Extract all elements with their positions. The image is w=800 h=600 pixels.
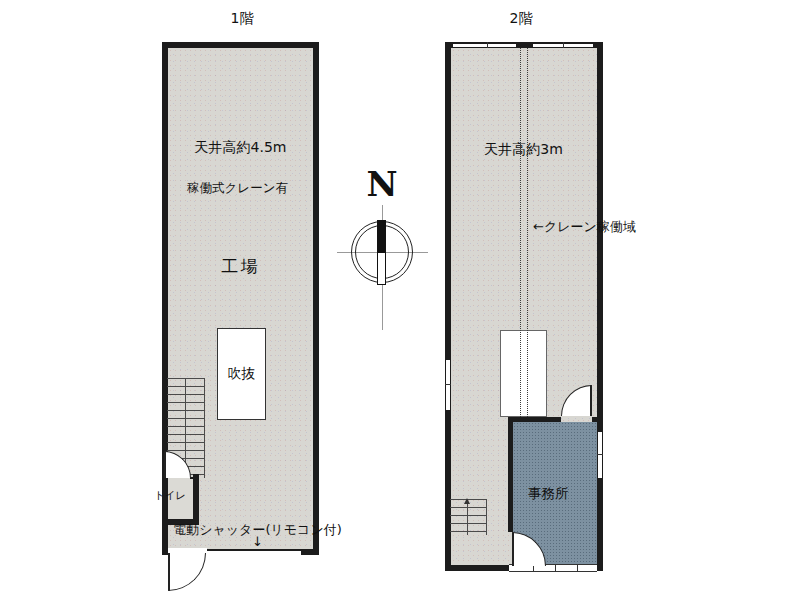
office-top-wall-stub	[592, 417, 600, 422]
toilet-right-wall	[193, 474, 199, 525]
crane-rail-line	[520, 48, 521, 417]
window-mullion	[577, 564, 578, 572]
atrium-void-box: 吹抜	[217, 328, 266, 420]
office-top-wall	[508, 417, 561, 422]
atrium-void-opening-2f	[500, 330, 547, 417]
crane-operating-area-note: ←クレーン稼働域	[533, 218, 636, 236]
left-wall-window	[446, 360, 450, 410]
ceiling-height-note-2f: 天井高約3m	[451, 141, 596, 159]
window-mullion	[563, 42, 564, 48]
entrance-door-arc	[168, 553, 206, 591]
shutter-arrow-down: ↓	[245, 534, 270, 549]
atrium-void-label: 吹抜	[228, 365, 256, 383]
compass-north-label: N	[352, 164, 412, 204]
toilet-label: トイレ	[154, 489, 186, 503]
factory-room-label: 工場	[168, 255, 313, 278]
ceiling-height-note-1f: 天井高約4.5m	[168, 139, 313, 157]
crane-rail-line	[527, 48, 528, 417]
floorplan-drawing: 1階 2階 吹抜 トイレ 天井高約4.5m 稼働式クレーン有 工場 電動シャッタ…	[0, 0, 800, 600]
first-floor-title: 1階	[222, 10, 262, 28]
window-mullion	[597, 454, 603, 455]
compass-needle-north	[377, 220, 386, 252]
top-wall-center-pier	[516, 42, 533, 48]
compass-needle-south	[377, 252, 386, 285]
window-mullion	[555, 564, 556, 572]
stair-up-arrow-icon	[464, 498, 470, 504]
stair-direction-line	[467, 502, 468, 535]
second-floor-title: 2階	[501, 10, 541, 28]
office-right-window	[598, 432, 602, 478]
toilet-wall-stub	[190, 477, 199, 479]
window-mullion	[445, 384, 451, 385]
office-left-wall	[508, 417, 513, 532]
stairs-second-floor	[450, 499, 487, 535]
office-label: 事務所	[528, 485, 569, 503]
window-mullion	[487, 42, 488, 48]
shutter-opening	[207, 549, 301, 556]
crane-note-1f: 稼働式クレーン有	[165, 180, 310, 197]
